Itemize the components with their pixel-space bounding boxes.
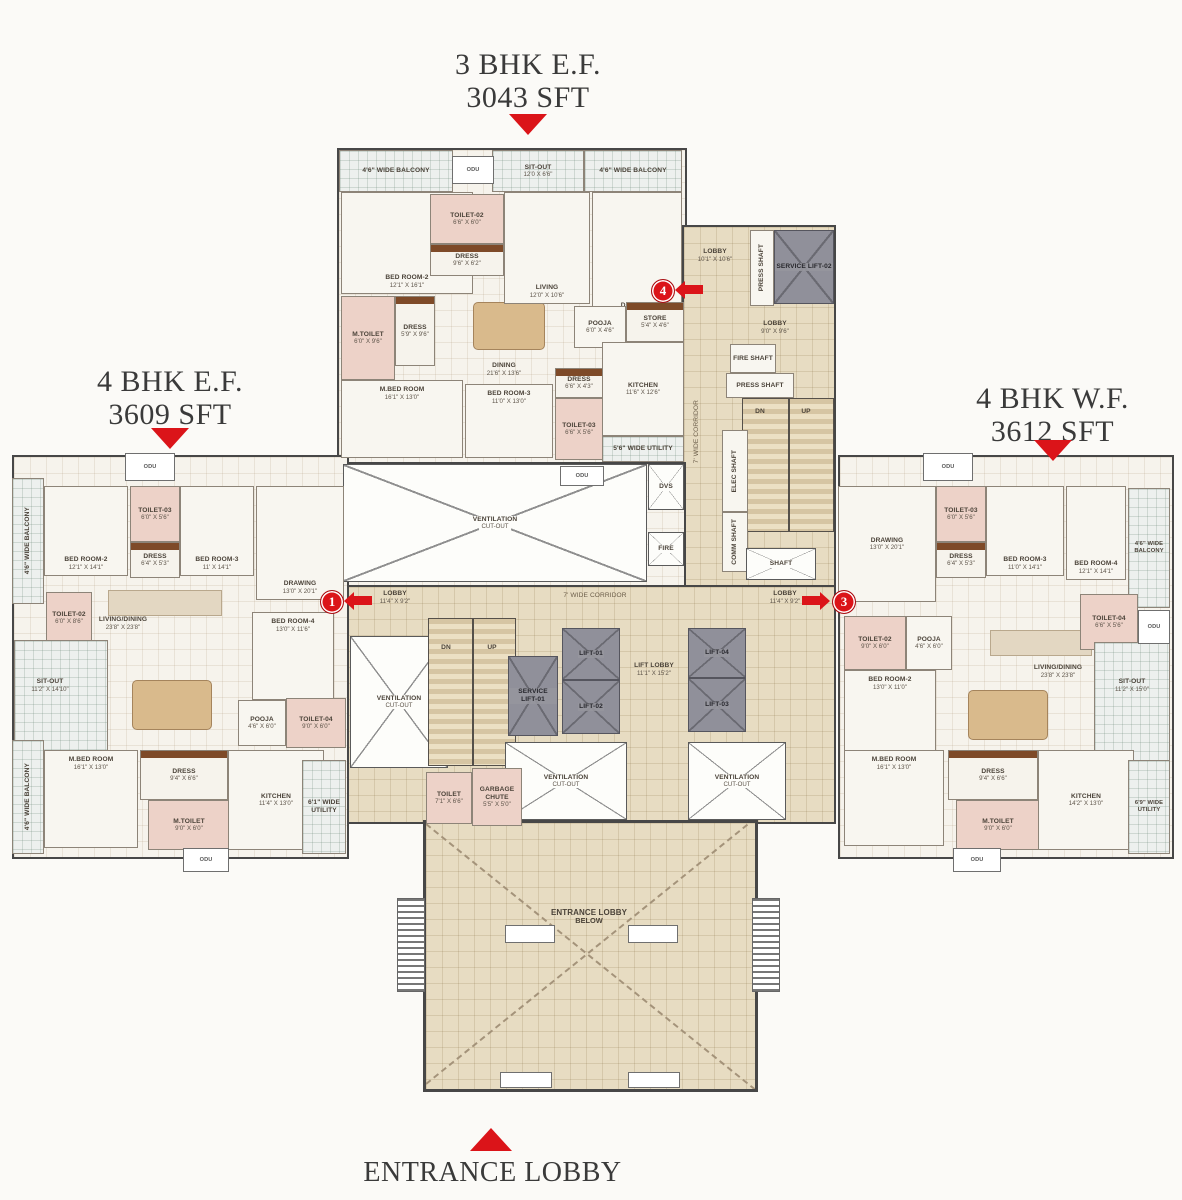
room-dims: 9'0" X 9'6"	[761, 328, 789, 335]
room-name: DN	[755, 408, 765, 416]
room-dims: 23'8" X 23'8"	[106, 624, 140, 631]
room-name: 5'6" WIDE UTILITY	[613, 445, 673, 453]
room-dims: BELOW	[575, 917, 603, 926]
stair-dn-label: DN	[746, 408, 774, 416]
room-name: LIFT-04	[704, 649, 730, 657]
entrance-lobby-below-label: ENTRANCE LOBBY BELOW	[528, 908, 650, 926]
entrance-lobby-title: ENTRANCE LOBBY	[320, 1158, 665, 1189]
room-dims: 12'1" X 16'1"	[390, 282, 424, 289]
room-dims: 11'2" X 14'10"	[31, 686, 68, 693]
dashed-diagonal	[425, 820, 755, 1085]
lobby-label: LOBBY 9'0" X 9'6"	[740, 320, 810, 335]
room-name: LOBBY	[763, 320, 787, 328]
lift-lobby-label: LIFT LOBBY 11'1" X 15'2"	[618, 662, 690, 677]
room-dims: 13'0" X 11'0"	[873, 684, 907, 691]
room-dims: 11'1" X 15'2"	[637, 670, 671, 677]
room-dims: 9'4" X 6'6"	[170, 775, 198, 782]
room-name: BED ROOM-4	[1074, 560, 1117, 568]
lift-02: LIFT-02	[562, 680, 620, 734]
room-balcony: 4'6" WIDE BALCONY	[12, 740, 44, 854]
room-shaft: SHAFT	[746, 548, 816, 580]
room-dims: 6'0" X 4'6"	[586, 327, 614, 334]
room-name: LOBBY	[773, 590, 797, 598]
room-utility: 5'6" WIDE UTILITY	[602, 436, 684, 462]
room-drawing: DRAWING 13'0" X 20'1"	[256, 486, 344, 600]
room-name: ODU	[200, 857, 213, 863]
room-name: TOILET-02	[450, 212, 483, 220]
room-name: ELEC SHAFT	[731, 450, 739, 492]
unit-title-top: 3 BHK E.F. 3043 SFT	[388, 48, 668, 114]
room-dims: 14'2" X 13'0"	[1069, 800, 1103, 807]
corridor-label: 7' WIDE CORRIDOR	[520, 592, 670, 600]
room-name: SIT-OUT	[1119, 678, 1146, 686]
room-name: LIFT-02	[578, 703, 604, 711]
room-dims: 9'6" X 6'2"	[453, 260, 481, 267]
ventilation-cutout-right: VENTILATION CUT-OUT	[688, 742, 786, 820]
room-name: SIT-OUT	[525, 164, 552, 172]
sofa-icon	[108, 590, 222, 616]
pointer-triangle-icon	[470, 1128, 512, 1151]
room-dining: DINING 21'6" X 13'6"	[437, 296, 571, 382]
room-drawing: DRAWING 13'0" X 20'1"	[838, 486, 936, 602]
room-name: M.TOILET	[352, 331, 383, 339]
room-bed-room-3: BED ROOM-3 11'0" X 13'0"	[465, 384, 553, 458]
room-dims: 9'0" X 6'0"	[861, 643, 889, 650]
room-dims: 6'6" X 4'3"	[565, 383, 593, 390]
room-name: BED ROOM-2	[868, 676, 911, 684]
unit-type-label: 3 BHK E.F.	[388, 48, 668, 81]
room-dvs: DVS	[648, 464, 684, 510]
room-name: DRAWING	[284, 580, 317, 588]
room-balcony: 4'6" WIDE BALCONY	[12, 478, 44, 604]
room-name: 6'9" WIDE UTILITY	[1129, 800, 1169, 813]
wall-pillar	[500, 1072, 552, 1088]
marker-4: 4	[651, 279, 675, 303]
room-name: FIRE	[656, 545, 675, 553]
room-dims: CUT-OUT	[383, 702, 414, 709]
room-name: ODU	[1148, 624, 1161, 630]
room-dims: 13'0" X 20'1"	[870, 544, 904, 551]
room-name: M.TOILET	[982, 818, 1013, 826]
room-bed-room-3: BED ROOM-3 11'0" X 14'1"	[986, 486, 1064, 576]
room-pooja: POOJA 4'6" X 6'0"	[238, 700, 286, 746]
room-name: TOILET-04	[299, 716, 332, 724]
odu-unit: ODU	[953, 848, 1001, 872]
room-name: LIVING	[536, 284, 559, 292]
odu-unit: ODU	[452, 156, 494, 184]
room-name: 7' WIDE CORRIDOR	[563, 592, 626, 600]
room-name: VENTILATION	[375, 695, 424, 703]
room-name: BED ROOM-3	[487, 390, 530, 398]
room-dims: 11'4" X 9'2"	[770, 598, 801, 605]
room-dims: 6'0" X 5'6"	[947, 514, 975, 521]
dining-table-icon	[132, 680, 212, 730]
room-name: UP	[801, 408, 810, 416]
room-dims: 9'0" X 6'0"	[302, 723, 330, 730]
dashed-diagonal	[425, 823, 755, 1090]
room-name: KITCHEN	[261, 793, 291, 801]
room-name: VENTILATION	[471, 516, 520, 524]
room-dims: 12'1" X 14'1"	[1079, 568, 1113, 575]
room-comm-shaft: COMM SHAFT	[722, 512, 748, 572]
room-toilet-02: TOILET-02 6'6" X 6'0"	[430, 194, 504, 244]
room-dims: CUT-OUT	[550, 781, 581, 788]
room-name: ODU	[942, 464, 955, 470]
room-name: 4'6" WIDE BALCONY	[24, 507, 32, 574]
odu-unit: ODU	[125, 453, 175, 481]
room-name: 4'6" WIDE BALCONY	[599, 167, 666, 175]
room-balcony: 4'6" WIDE BALCONY	[1128, 488, 1170, 608]
room-name: KITCHEN	[628, 382, 658, 390]
room-m-toilet: M.TOILET 6'0" X 9'6"	[341, 296, 395, 380]
room-dims: 6'0" X 9'6"	[354, 338, 382, 345]
ventilation-cutout-center: VENTILATION CUT-OUT	[505, 742, 627, 820]
pointer-triangle-icon	[509, 114, 547, 135]
room-toilet-04: TOILET-04 9'0" X 6'0"	[286, 698, 346, 748]
marker-number: 1	[329, 594, 336, 610]
dining-table-icon	[968, 690, 1048, 740]
unit-type-label: 4 BHK E.F.	[60, 365, 280, 398]
staircase-lower	[428, 618, 516, 766]
room-dims: 23'8" X 23'8"	[1041, 672, 1075, 679]
odu-unit: ODU	[183, 848, 229, 872]
room-name: KITCHEN	[1071, 793, 1101, 801]
room-fire-shaft: FIRE SHAFT	[730, 344, 776, 373]
room-dims: 5'5" X 5'0"	[483, 801, 511, 808]
room-dims: 10'1" X 10'6"	[698, 256, 732, 263]
room-dims: 6'6" X 6'0"	[453, 219, 481, 226]
room-name: POOJA	[917, 636, 941, 644]
room-dims: 16'1" X 13'0"	[877, 764, 911, 771]
room-name: UP	[487, 644, 496, 652]
living-dining-label: LIVING/DINING 23'8" X 23'8"	[1012, 664, 1104, 679]
pointer-triangle-icon	[151, 428, 189, 449]
room-name: TOILET-03	[562, 422, 595, 430]
room-toilet-03: TOILET-03 6'0" X 5'6"	[130, 486, 180, 542]
room-sit-out: SIT-OUT 12'0 X 6'6"	[492, 150, 584, 192]
room-dims: 9'0" X 6'0"	[984, 825, 1012, 832]
entrance-lobby-slab	[423, 820, 758, 1092]
room-m-toilet: M.TOILET 9'0" X 6'0"	[956, 800, 1040, 850]
room-garbage-chute: GARBAGE CHUTE 5'5" X 5'0"	[472, 768, 522, 826]
stair-up-label: UP	[792, 408, 820, 416]
room-dims: 21'6" X 13'6"	[487, 370, 521, 377]
room-name: PRESS SHAFT	[758, 244, 766, 291]
room-name: LIFT-03	[704, 701, 730, 709]
room-press-shaft: PRESS SHAFT	[726, 373, 794, 398]
room-kitchen: KITCHEN 14'2" X 13'0"	[1038, 750, 1134, 850]
room-living: LIVING 12'0" X 10'6"	[504, 192, 590, 304]
room-name: VENTILATION	[542, 774, 591, 782]
room-dims: 7'1" X 6'6"	[435, 798, 463, 805]
corridor-label-vertical: 7' WIDE CORRIDOR	[686, 400, 708, 540]
unit-type-label: 4 BHK W.F.	[940, 382, 1165, 415]
room-dims: 6'0" X 5'6"	[141, 514, 169, 521]
room-dims: 11' X 14'1"	[203, 564, 231, 571]
odu-unit: ODU	[560, 466, 604, 486]
room-name: DRESS	[172, 768, 195, 776]
room-name: BED ROOM-4	[271, 618, 314, 626]
odu-unit: ODU	[1138, 610, 1170, 644]
room-dims: 9'4" X 6'6"	[979, 775, 1007, 782]
room-name: TOILET-03	[944, 507, 977, 515]
floor-plan: 3 BHK E.F. 3043 SFT 4 BHK E.F. 3609 SFT …	[0, 0, 1182, 1200]
sit-out-label: SIT-OUT 11'2" X 15'0"	[1102, 678, 1162, 693]
room-bed-room-4: BED ROOM-4 13'0" X 11'6"	[252, 612, 334, 700]
room-name: POOJA	[250, 716, 274, 724]
room-name: LIVING/DINING	[99, 616, 147, 624]
marker-1: 1	[320, 590, 344, 614]
side-stair-hatch	[752, 898, 780, 992]
room-name: ODU	[971, 857, 984, 863]
marker-number: 4	[660, 283, 667, 299]
room-dims: CUT-OUT	[721, 781, 752, 788]
room-dims: 11'2" X 15'0"	[1115, 686, 1149, 693]
room-bed-room-2: BED ROOM-2 12'1" X 14'1"	[44, 486, 128, 576]
room-name: LOBBY	[703, 248, 727, 256]
stair-up-label: UP	[478, 644, 506, 652]
room-pooja: POOJA 4'6" X 6'0"	[906, 616, 952, 670]
room-dress: DRESS 9'4" X 6'6"	[948, 750, 1038, 800]
room-dims: 11'0" X 14'1"	[1008, 564, 1042, 571]
unit-area-label: 3043 SFT	[388, 81, 668, 114]
lobby-label: LOBBY 10'1" X 10'6"	[684, 248, 746, 263]
sofa-icon	[990, 630, 1092, 656]
room-name: LIVING/DINING	[1034, 664, 1082, 672]
room-name: LIFT LOBBY	[634, 662, 674, 670]
room-m-bed-room: M.BED ROOM 16'1" X 13'0"	[844, 750, 944, 846]
room-m-bed-room: M.BED ROOM 16'1" X 13'0"	[44, 750, 138, 848]
room-name: DVS	[657, 483, 675, 491]
room-dims: 12'1" X 14'1"	[69, 564, 103, 571]
room-name: 4'6" WIDE BALCONY	[362, 167, 429, 175]
wall-pillar	[505, 925, 555, 943]
service-lift-01: SERVICE LIFT-01	[508, 656, 558, 736]
room-name: TOILET	[437, 791, 461, 799]
room-name: TOILET-03	[138, 507, 171, 515]
room-dress: DRESS 6'4" X 5'3"	[130, 542, 180, 578]
room-name: PRESS SHAFT	[736, 382, 783, 390]
room-sit-out	[1094, 642, 1170, 764]
room-name: SERVICE LIFT-01	[509, 688, 557, 703]
staircase-upper	[742, 398, 834, 532]
room-name: BED ROOM-3	[1003, 556, 1046, 564]
room-toilet-03: TOILET-03 6'6" X 5'6"	[555, 398, 603, 460]
arrow-right-icon	[802, 596, 820, 605]
room-dims: CUT-OUT	[479, 523, 510, 530]
room-dims: 4'6" X 6'0"	[915, 643, 943, 650]
arrow-left-icon	[685, 285, 703, 294]
room-name: SIT-OUT	[37, 678, 64, 686]
room-balcony: 4'6" WIDE BALCONY	[339, 150, 453, 192]
room-name: DRESS	[455, 253, 478, 261]
room-name: VENTILATION	[713, 774, 762, 782]
room-name: POOJA	[588, 320, 612, 328]
room-dims: 11'0" X 13'0"	[492, 398, 526, 405]
room-dims: 11'6" X 12'6"	[626, 389, 660, 396]
room-dims: 6'6" X 5'6"	[1095, 622, 1123, 629]
room-name: LIFT-01	[578, 650, 604, 658]
room-dims: 6'4" X 5'3"	[947, 560, 975, 567]
room-dims: 6'4" X 5'3"	[141, 560, 169, 567]
room-bed-room-2: BED ROOM-2 13'0" X 11'0"	[844, 670, 936, 756]
sit-out-label: SIT-OUT 11'2" X 14'10"	[18, 678, 82, 693]
lift-01: LIFT-01	[562, 628, 620, 680]
room-name: DINING	[492, 362, 516, 370]
room-name: M.BED ROOM	[380, 386, 425, 394]
wall-pillar	[628, 1072, 680, 1088]
room-name: 4'6" WIDE BALCONY	[24, 763, 32, 830]
room-name: COMM SHAFT	[731, 519, 739, 565]
lift-04: LIFT-04	[688, 628, 746, 678]
room-name: ODU	[144, 464, 157, 470]
room-dress: DRESS 9'6" X 6'2"	[430, 244, 504, 276]
room-name: M.BED ROOM	[872, 756, 917, 764]
wall-pillar	[628, 925, 678, 943]
room-dims: 11'4" X 13'0"	[259, 800, 293, 807]
room-dims: 11'4" X 9'2"	[380, 598, 411, 605]
room-store: STORE 5'4" X 4'6"	[626, 302, 684, 342]
room-balcony: 4'6" WIDE BALCONY	[584, 150, 682, 192]
room-utility: 6'9" WIDE UTILITY	[1128, 760, 1170, 854]
unit-title-right: 4 BHK W.F. 3612 SFT	[940, 382, 1165, 448]
room-dims: 9'0" X 6'0"	[175, 825, 203, 832]
room-name: BED ROOM-2	[385, 274, 428, 282]
room-name: DN	[441, 644, 451, 652]
room-name: DRESS	[949, 553, 972, 561]
room-dims: 12'0 X 6'6"	[524, 171, 553, 178]
lift-03: LIFT-03	[688, 678, 746, 732]
unit-title-left: 4 BHK E.F. 3609 SFT	[60, 365, 280, 431]
room-name: 7' WIDE CORRIDOR	[693, 400, 701, 463]
marker-3: 3	[832, 590, 856, 614]
room-name: SERVICE LIFT-02	[775, 263, 832, 271]
room-name: GARBAGE CHUTE	[473, 786, 521, 801]
room-name: DRESS	[567, 376, 590, 384]
room-fire: FIRE	[648, 532, 684, 566]
room-name: 6'1" WIDE UTILITY	[303, 799, 345, 814]
room-elec-shaft: ELEC SHAFT	[722, 430, 748, 512]
room-name: DRESS	[981, 768, 1004, 776]
room-name: LOBBY	[383, 590, 407, 598]
room-name: DRESS	[403, 324, 426, 332]
room-name: ODU	[576, 473, 589, 479]
room-dress: DRESS 9'4" X 6'6"	[140, 750, 228, 800]
room-bed-room-4: BED ROOM-4 12'1" X 14'1"	[1066, 486, 1126, 580]
room-name: M.BED ROOM	[69, 756, 114, 764]
service-lift-02: SERVICE LIFT-02	[774, 230, 834, 304]
arrow-left-icon	[354, 596, 372, 605]
room-dims: 13'0" X 11'6"	[276, 626, 310, 633]
room-m-bed-room: M.BED ROOM 16'1" X 13'0"	[341, 380, 463, 458]
room-name: STORE	[643, 315, 666, 323]
room-dims: 13'0" X 20'1"	[283, 588, 317, 595]
room-name: BED ROOM-2	[64, 556, 107, 564]
room-name: 4'6" WIDE BALCONY	[1129, 541, 1169, 554]
room-toilet-common: TOILET 7'1" X 6'6"	[426, 772, 472, 824]
pointer-triangle-icon	[1034, 440, 1072, 461]
room-name: SHAFT	[768, 560, 794, 568]
room-name: ODU	[467, 167, 480, 173]
room-dims: 5'4" X 4'6"	[641, 322, 669, 329]
room-dress: DRESS 6'6" X 4'3"	[555, 368, 603, 398]
room-dress: DRESS 5'9" X 9'6"	[395, 296, 435, 366]
stair-dn-label: DN	[432, 644, 460, 652]
room-dims: 6'6" X 5'6"	[565, 429, 593, 436]
room-name: FIRE SHAFT	[733, 355, 773, 363]
room-m-toilet: M.TOILET 9'0" X 6'0"	[148, 800, 230, 850]
room-kitchen: KITCHEN 11'6" X 12'6"	[602, 342, 684, 436]
room-dress: DRESS 6'4" X 5'3"	[936, 542, 986, 578]
side-stair-hatch	[397, 898, 425, 992]
room-name: TOILET-02	[858, 636, 891, 644]
room-name: M.TOILET	[173, 818, 204, 826]
room-name: DRESS	[143, 553, 166, 561]
room-dims: 5'9" X 9'6"	[401, 331, 429, 338]
room-toilet-03: TOILET-03 6'0" X 5'6"	[936, 486, 986, 542]
odu-unit: ODU	[923, 453, 973, 481]
unit-area-label: 3609 SFT	[60, 398, 280, 431]
room-utility: 6'1" WIDE UTILITY	[302, 760, 346, 854]
room-dims: 16'1" X 13'0"	[385, 394, 419, 401]
room-dims: 4'6" X 6'0"	[248, 723, 276, 730]
room-press-shaft: PRESS SHAFT	[750, 230, 774, 306]
room-toilet-02: TOILET-02 9'0" X 6'0"	[844, 616, 906, 670]
room-bed-room-3: BED ROOM-3 11' X 14'1"	[180, 486, 254, 576]
marker-number: 3	[841, 594, 848, 610]
room-dims: 16'1" X 13'0"	[74, 764, 108, 771]
room-name: TOILET-04	[1092, 615, 1125, 623]
living-dining-label: LIVING/DINING 23'8" X 23'8"	[78, 616, 168, 631]
room-name: DRAWING	[871, 537, 904, 545]
room-name: BED ROOM-3	[195, 556, 238, 564]
